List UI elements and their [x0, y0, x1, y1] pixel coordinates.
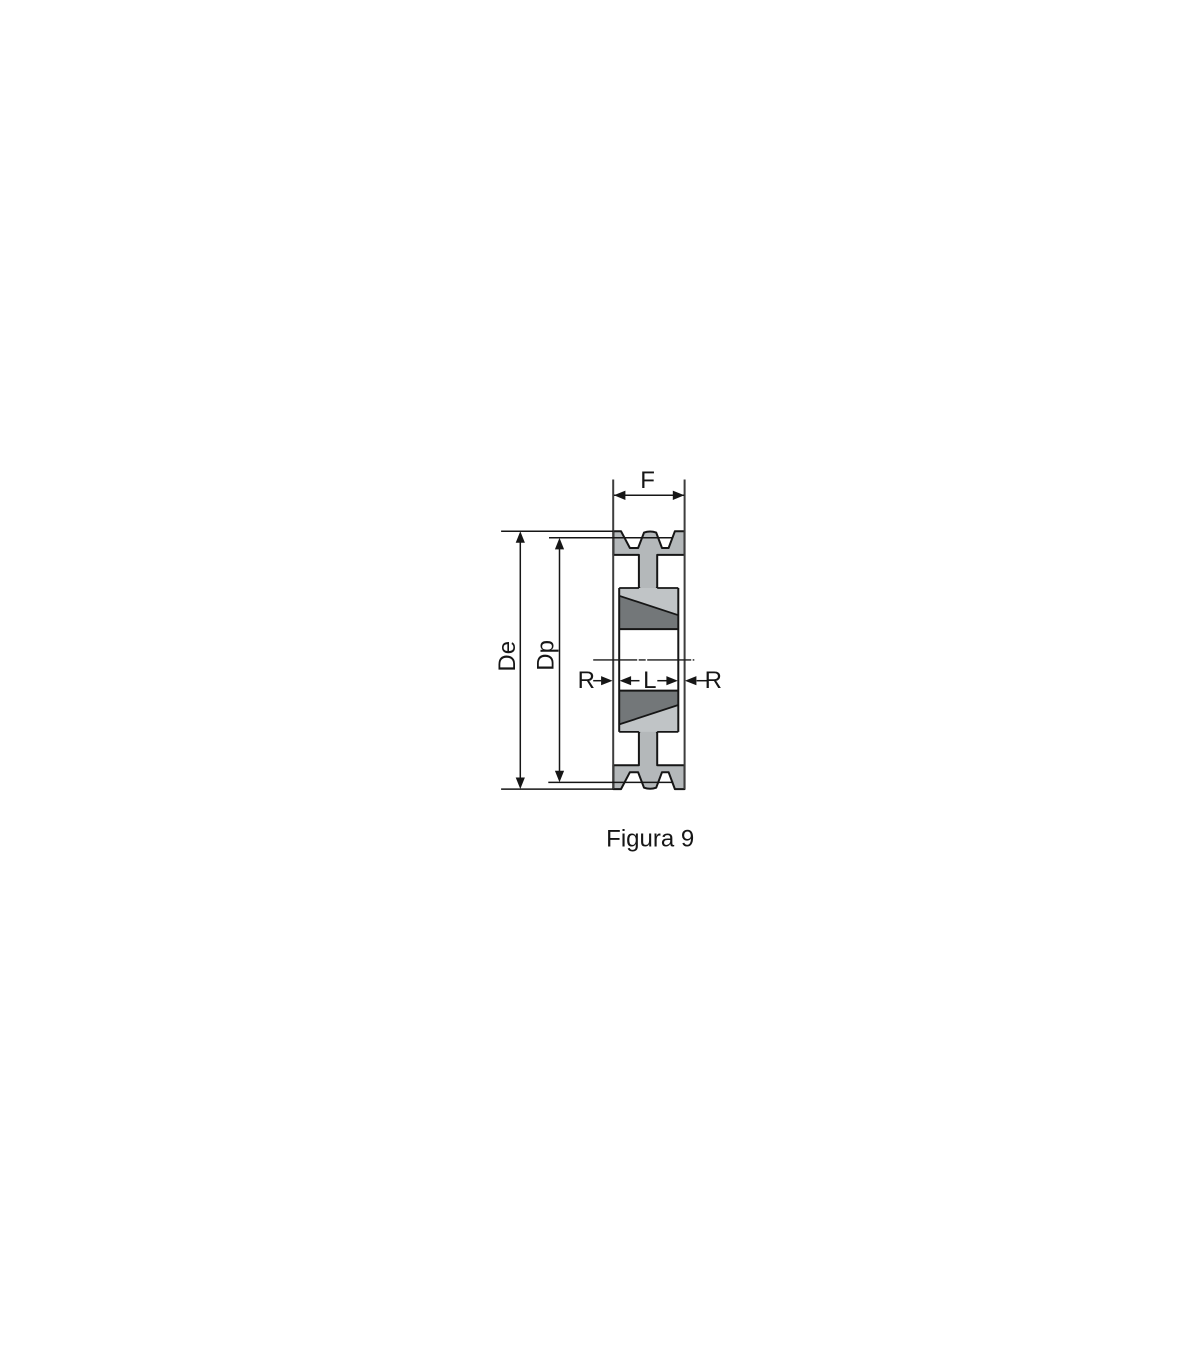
svg-text:R: R [578, 667, 595, 694]
svg-text:Figura 9: Figura 9 [606, 825, 694, 852]
svg-text:R: R [705, 667, 722, 694]
svg-text:L: L [643, 667, 656, 694]
svg-text:F: F [640, 467, 655, 494]
svg-text:De: De [494, 641, 521, 672]
svg-text:Dp: Dp [533, 640, 560, 671]
